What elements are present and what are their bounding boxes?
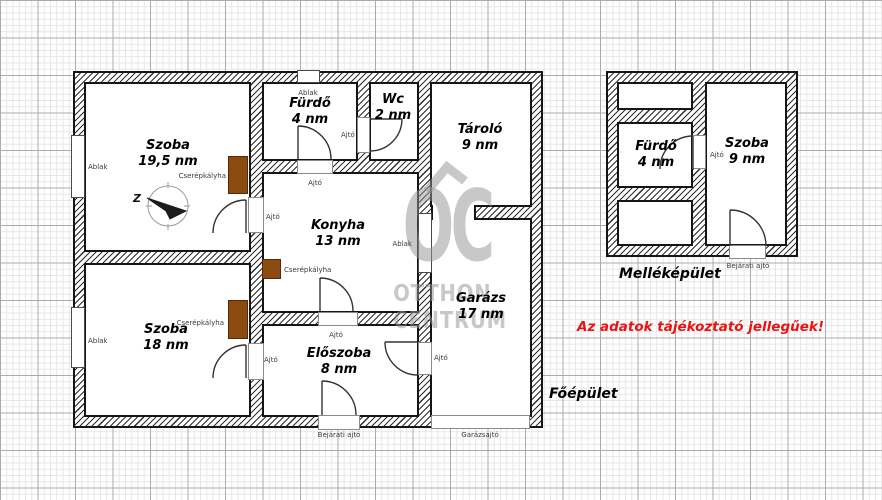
door-opening-eloszoba-garazs [418, 342, 432, 375]
entrance-door-label-annex: Bejárati ajtó [723, 262, 773, 270]
window-label-szoba2: Ablak [88, 337, 108, 345]
door-label-szoba1: Ajtó [266, 213, 280, 221]
window-label-konyha: Ablak [378, 240, 412, 248]
entrance-door-opening-main [318, 415, 360, 430]
room-label-eloszoba: Előszoba8 nm [279, 346, 399, 377]
annex-room-bottom [617, 200, 693, 246]
door-opening-szoba1-konyha [248, 197, 264, 233]
door-opening-szoba2-eloszoba [248, 343, 264, 380]
window-symbol-szoba1 [71, 135, 85, 198]
garage-door-label: Garázsajtó [456, 431, 504, 439]
door-opening-konyha-eloszoba [318, 312, 358, 326]
stove-label-szoba1: Cserépkályha [160, 172, 226, 180]
door-label-furdo: Ajtó [300, 179, 330, 187]
stove-konyha [262, 259, 281, 279]
room-label-szoba1: Szoba19,5 nm [98, 138, 238, 169]
watermark-logo: OC [401, 178, 494, 276]
door-label-szoba2: Ajtó [264, 356, 278, 364]
window-label-furdo: Ablak [293, 89, 323, 97]
window-symbol-furdo [297, 70, 320, 83]
annex-room-top [617, 82, 693, 110]
room-label-tarolo: Tároló9 nm [430, 122, 530, 153]
door-label-garazs: Ajtó [434, 354, 448, 362]
compass-letter: Z [133, 192, 141, 205]
annex-building-label: Melléképület [619, 266, 721, 282]
window-symbol-szoba2 [71, 307, 85, 368]
floor-plan-page: { "page":{"disclaimer":"Az adatok tájéko… [0, 0, 882, 500]
room-label-wc: Wc2 nm [343, 92, 443, 123]
room-label-furdo2: Fürdő4 nm [606, 139, 706, 170]
entrance-door-label-main: Bejárati ajtó [314, 431, 364, 439]
disclaimer-text: Az adatok tájékoztató jellegűek! [577, 319, 824, 335]
door-opening-furdo-konyha [297, 160, 333, 174]
entrance-door-opening-annex [729, 245, 766, 259]
room-label-garazs: Garázs17 nm [431, 291, 531, 322]
door-label-furdo2: Ajtó [710, 151, 724, 159]
garage-door-opening [431, 415, 530, 429]
main-building-label: Főépület [549, 386, 618, 402]
room-label-konyha: Konyha13 nm [288, 218, 388, 249]
door-label-konyha: Ajtó [321, 331, 351, 339]
stove-label-konyha: Cserépkályha [284, 266, 331, 274]
window-label-szoba1: Ablak [88, 163, 108, 171]
door-label-wc: Ajtó [341, 131, 355, 139]
stove-label-szoba2: Cserépkályha [158, 319, 224, 327]
